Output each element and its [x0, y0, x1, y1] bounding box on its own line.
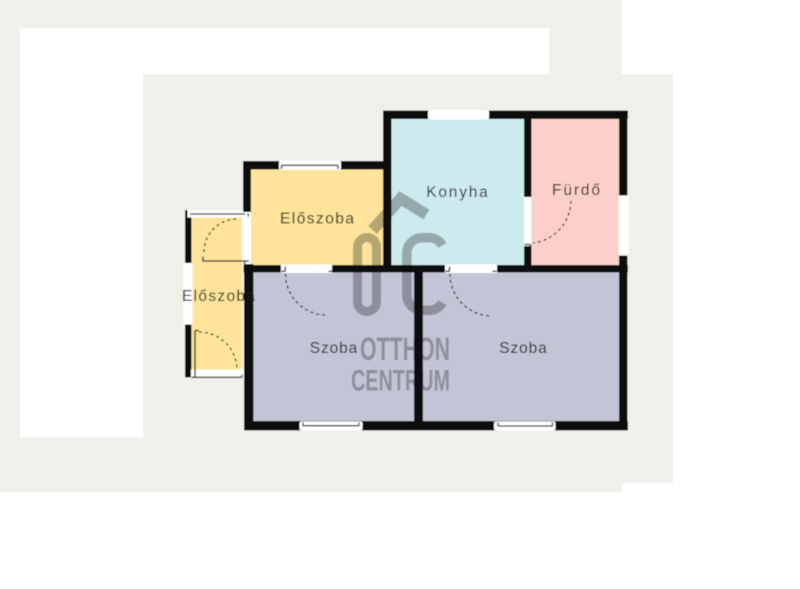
svg-text:Szoba: Szoba [310, 340, 358, 357]
svg-text:Előszoba: Előszoba [280, 211, 354, 228]
svg-text:OTTHON: OTTHON [360, 331, 450, 367]
svg-text:Előszoba: Előszoba [182, 288, 255, 305]
svg-text:Szoba: Szoba [499, 340, 547, 357]
svg-text:Konyha: Konyha [426, 184, 488, 201]
svg-text:Fürdő: Fürdő [552, 182, 600, 199]
svg-text:CENTRUM: CENTRUM [351, 365, 450, 398]
